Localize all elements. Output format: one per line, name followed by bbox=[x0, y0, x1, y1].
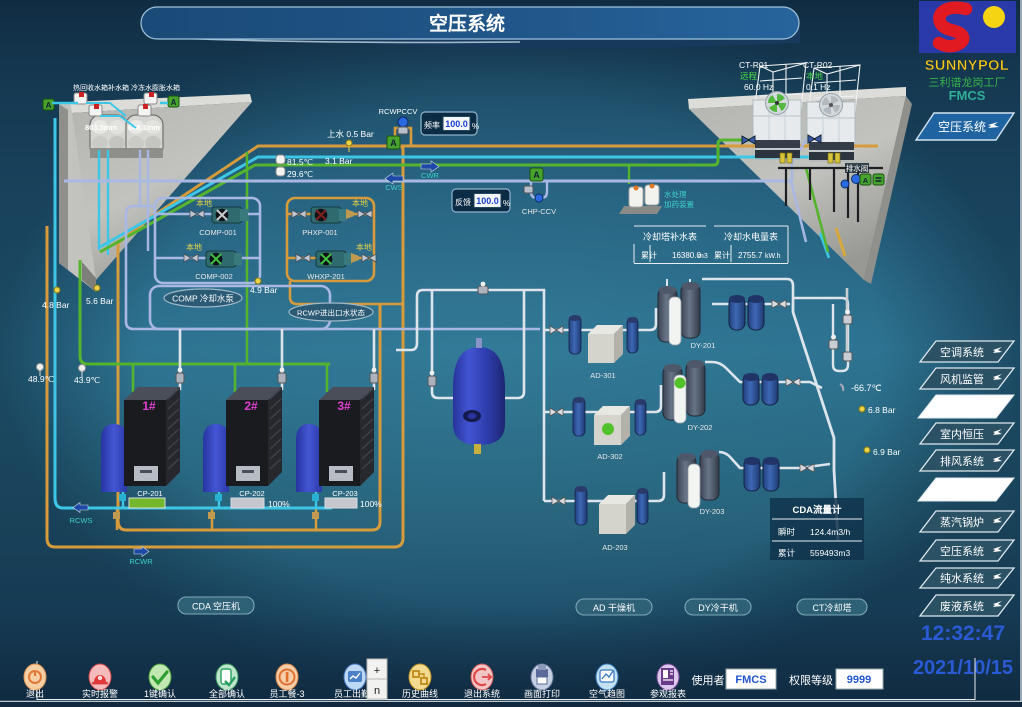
svg-text:RCWR: RCWR bbox=[129, 557, 153, 566]
svg-text:100.0: 100.0 bbox=[476, 196, 499, 206]
svg-text:空压系统: 空压系统 bbox=[429, 12, 505, 35]
svg-text:6.8 Bar: 6.8 Bar bbox=[868, 405, 896, 415]
svg-text:-66.7℃: -66.7℃ bbox=[851, 383, 882, 393]
svg-text:本地: 本地 bbox=[196, 198, 212, 208]
svg-text:纯水系统: 纯水系统 bbox=[940, 572, 984, 585]
svg-text:CDA流量计: CDA流量计 bbox=[792, 504, 842, 516]
svg-text:3#: 3# bbox=[337, 399, 351, 413]
svg-text:A: A bbox=[46, 101, 52, 110]
svg-text:权限等级: 权限等级 bbox=[789, 673, 833, 687]
svg-text:蒸汽锅炉: 蒸汽锅炉 bbox=[940, 515, 984, 529]
svg-text:RCWPCCV: RCWPCCV bbox=[379, 107, 418, 116]
svg-text:CP-203: CP-203 bbox=[332, 489, 357, 498]
svg-text:室内恒压: 室内恒压 bbox=[940, 427, 984, 441]
svg-text:648.1mm: 648.1mm bbox=[128, 123, 160, 132]
svg-text:CT-R01: CT-R01 bbox=[739, 60, 769, 70]
svg-text:画面打印: 画面打印 bbox=[524, 688, 560, 699]
svg-text:WHXP-201: WHXP-201 bbox=[307, 272, 345, 281]
svg-text:m3: m3 bbox=[698, 253, 708, 260]
svg-text:三利谱龙岗工厂: 三利谱龙岗工厂 bbox=[929, 75, 1006, 89]
svg-text:空压系统: 空压系统 bbox=[938, 120, 986, 134]
svg-text:空气趋图: 空气趋图 bbox=[589, 688, 625, 699]
svg-text:2755.7: 2755.7 bbox=[738, 251, 763, 260]
svg-text:冷却塔补水表: 冷却塔补水表 bbox=[643, 231, 697, 242]
svg-text:反馈: 反馈 bbox=[455, 197, 471, 207]
svg-text:本地: 本地 bbox=[352, 198, 368, 208]
svg-text:退出: 退出 bbox=[26, 688, 44, 699]
svg-text:排风系统: 排风系统 bbox=[940, 454, 984, 468]
svg-text:9999: 9999 bbox=[847, 674, 871, 686]
svg-text:RCWS: RCWS bbox=[70, 516, 93, 525]
svg-text:上水 0.5 Bar: 上水 0.5 Bar bbox=[327, 129, 374, 139]
svg-text:6.9 Bar: 6.9 Bar bbox=[873, 447, 901, 457]
svg-text:FMCS: FMCS bbox=[949, 88, 986, 103]
svg-text:CDA 空压机: CDA 空压机 bbox=[192, 601, 240, 612]
svg-text:CHP-CCV: CHP-CCV bbox=[522, 207, 556, 216]
svg-text:本地: 本地 bbox=[186, 242, 202, 252]
svg-text:CT冷却塔: CT冷却塔 bbox=[813, 602, 852, 613]
svg-text:0.1 Hz: 0.1 Hz bbox=[806, 82, 831, 92]
svg-text:PHXP-001: PHXP-001 bbox=[302, 228, 337, 237]
svg-text:水处理: 水处理 bbox=[664, 189, 687, 199]
svg-text:远程: 远程 bbox=[740, 71, 758, 81]
svg-text:A: A bbox=[390, 138, 397, 148]
svg-text:本地: 本地 bbox=[806, 71, 824, 81]
svg-text:全部确认: 全部确认 bbox=[209, 688, 245, 699]
svg-text:CWS: CWS bbox=[385, 183, 403, 192]
svg-text:参观报表: 参观报表 bbox=[650, 688, 686, 699]
svg-text:A: A bbox=[533, 170, 540, 180]
svg-text:员工餐-3: 员工餐-3 bbox=[269, 688, 304, 699]
svg-text:废液系统: 废液系统 bbox=[940, 599, 984, 613]
svg-text:CP-201: CP-201 bbox=[137, 489, 162, 498]
svg-text:累计: 累计 bbox=[714, 250, 730, 260]
svg-text:2021/10/15: 2021/10/15 bbox=[913, 657, 1013, 679]
svg-text:AD-302: AD-302 bbox=[597, 452, 622, 461]
svg-text:A: A bbox=[171, 98, 177, 107]
svg-text:43.9℃: 43.9℃ bbox=[74, 375, 101, 385]
svg-text:员工出勤: 员工出勤 bbox=[334, 688, 370, 699]
svg-text:CP-202: CP-202 bbox=[239, 489, 264, 498]
svg-text:n: n bbox=[374, 685, 380, 697]
svg-text:5.6 Bar: 5.6 Bar bbox=[86, 296, 114, 306]
svg-text:SUNNYPOL: SUNNYPOL bbox=[925, 58, 1010, 74]
svg-text:风机监管: 风机监管 bbox=[940, 372, 984, 386]
svg-text:排水阀: 排水阀 bbox=[846, 163, 869, 173]
svg-text:累计: 累计 bbox=[641, 250, 657, 260]
svg-text:2#: 2# bbox=[244, 399, 258, 413]
svg-text:空压系统: 空压系统 bbox=[940, 544, 984, 558]
svg-text:559493m3: 559493m3 bbox=[810, 548, 850, 558]
svg-text:%: % bbox=[503, 199, 510, 208]
svg-text:使用者: 使用者 bbox=[692, 674, 725, 687]
svg-text:1键确认: 1键确认 bbox=[144, 688, 176, 699]
svg-text:FMCS: FMCS bbox=[735, 674, 766, 686]
svg-text:100.0: 100.0 bbox=[445, 119, 468, 129]
svg-text:频率: 频率 bbox=[424, 120, 440, 130]
svg-text:冷却水电量表: 冷却水电量表 bbox=[724, 231, 778, 242]
svg-text:DY-201: DY-201 bbox=[691, 341, 716, 350]
svg-text:100%: 100% bbox=[360, 499, 382, 509]
svg-text:AD-301: AD-301 bbox=[590, 371, 615, 380]
svg-text:4.9 Bar: 4.9 Bar bbox=[250, 285, 278, 295]
svg-text:RCWP进出口水状态: RCWP进出口水状态 bbox=[297, 308, 365, 318]
svg-text:4.8 Bar: 4.8 Bar bbox=[42, 300, 70, 310]
svg-text:CWR: CWR bbox=[421, 171, 439, 180]
svg-text:热回收水箱补水箱 冷冻水膨胀水箱: 热回收水箱补水箱 冷冻水膨胀水箱 bbox=[73, 83, 180, 92]
svg-text:12:32:47: 12:32:47 bbox=[921, 622, 1005, 645]
svg-text:%: % bbox=[472, 122, 479, 131]
svg-text:AD 干燥机: AD 干燥机 bbox=[593, 602, 635, 613]
svg-text:COMP-001: COMP-001 bbox=[199, 228, 237, 237]
svg-text:A: A bbox=[863, 176, 869, 185]
svg-text:DY-203: DY-203 bbox=[700, 507, 725, 516]
svg-text:实时报警: 实时报警 bbox=[82, 688, 118, 699]
svg-text:退出系统: 退出系统 bbox=[464, 688, 500, 699]
svg-text:+: + bbox=[374, 665, 380, 677]
svg-text:空调系统: 空调系统 bbox=[940, 345, 984, 359]
svg-text:kW.h: kW.h bbox=[765, 253, 781, 260]
svg-text:本地: 本地 bbox=[356, 242, 372, 252]
svg-text:CT-R02: CT-R02 bbox=[803, 60, 833, 70]
svg-text:AD-203: AD-203 bbox=[602, 543, 627, 552]
svg-text:历史曲线: 历史曲线 bbox=[402, 688, 438, 699]
svg-text:100%: 100% bbox=[268, 499, 290, 509]
svg-text:瞬时: 瞬时 bbox=[778, 527, 796, 537]
svg-text:81.5℃: 81.5℃ bbox=[287, 157, 314, 167]
svg-text:COMP 冷却水泵: COMP 冷却水泵 bbox=[172, 294, 234, 304]
svg-text:803.3mm: 803.3mm bbox=[85, 123, 117, 132]
svg-text:3.1 Bar: 3.1 Bar bbox=[325, 156, 353, 166]
svg-text:DY-202: DY-202 bbox=[688, 423, 713, 432]
svg-text:48.9℃: 48.9℃ bbox=[28, 374, 55, 384]
svg-text:1#: 1# bbox=[142, 399, 156, 413]
svg-text:60.0 Hz: 60.0 Hz bbox=[744, 82, 773, 92]
svg-text:加药装置: 加药装置 bbox=[664, 199, 694, 209]
svg-text:29.6℃: 29.6℃ bbox=[287, 169, 314, 179]
svg-text:累计: 累计 bbox=[778, 548, 796, 558]
svg-text:124.4m3/h: 124.4m3/h bbox=[810, 527, 850, 537]
svg-text:COMP-002: COMP-002 bbox=[195, 272, 233, 281]
svg-text:DY冷干机: DY冷干机 bbox=[698, 602, 738, 613]
